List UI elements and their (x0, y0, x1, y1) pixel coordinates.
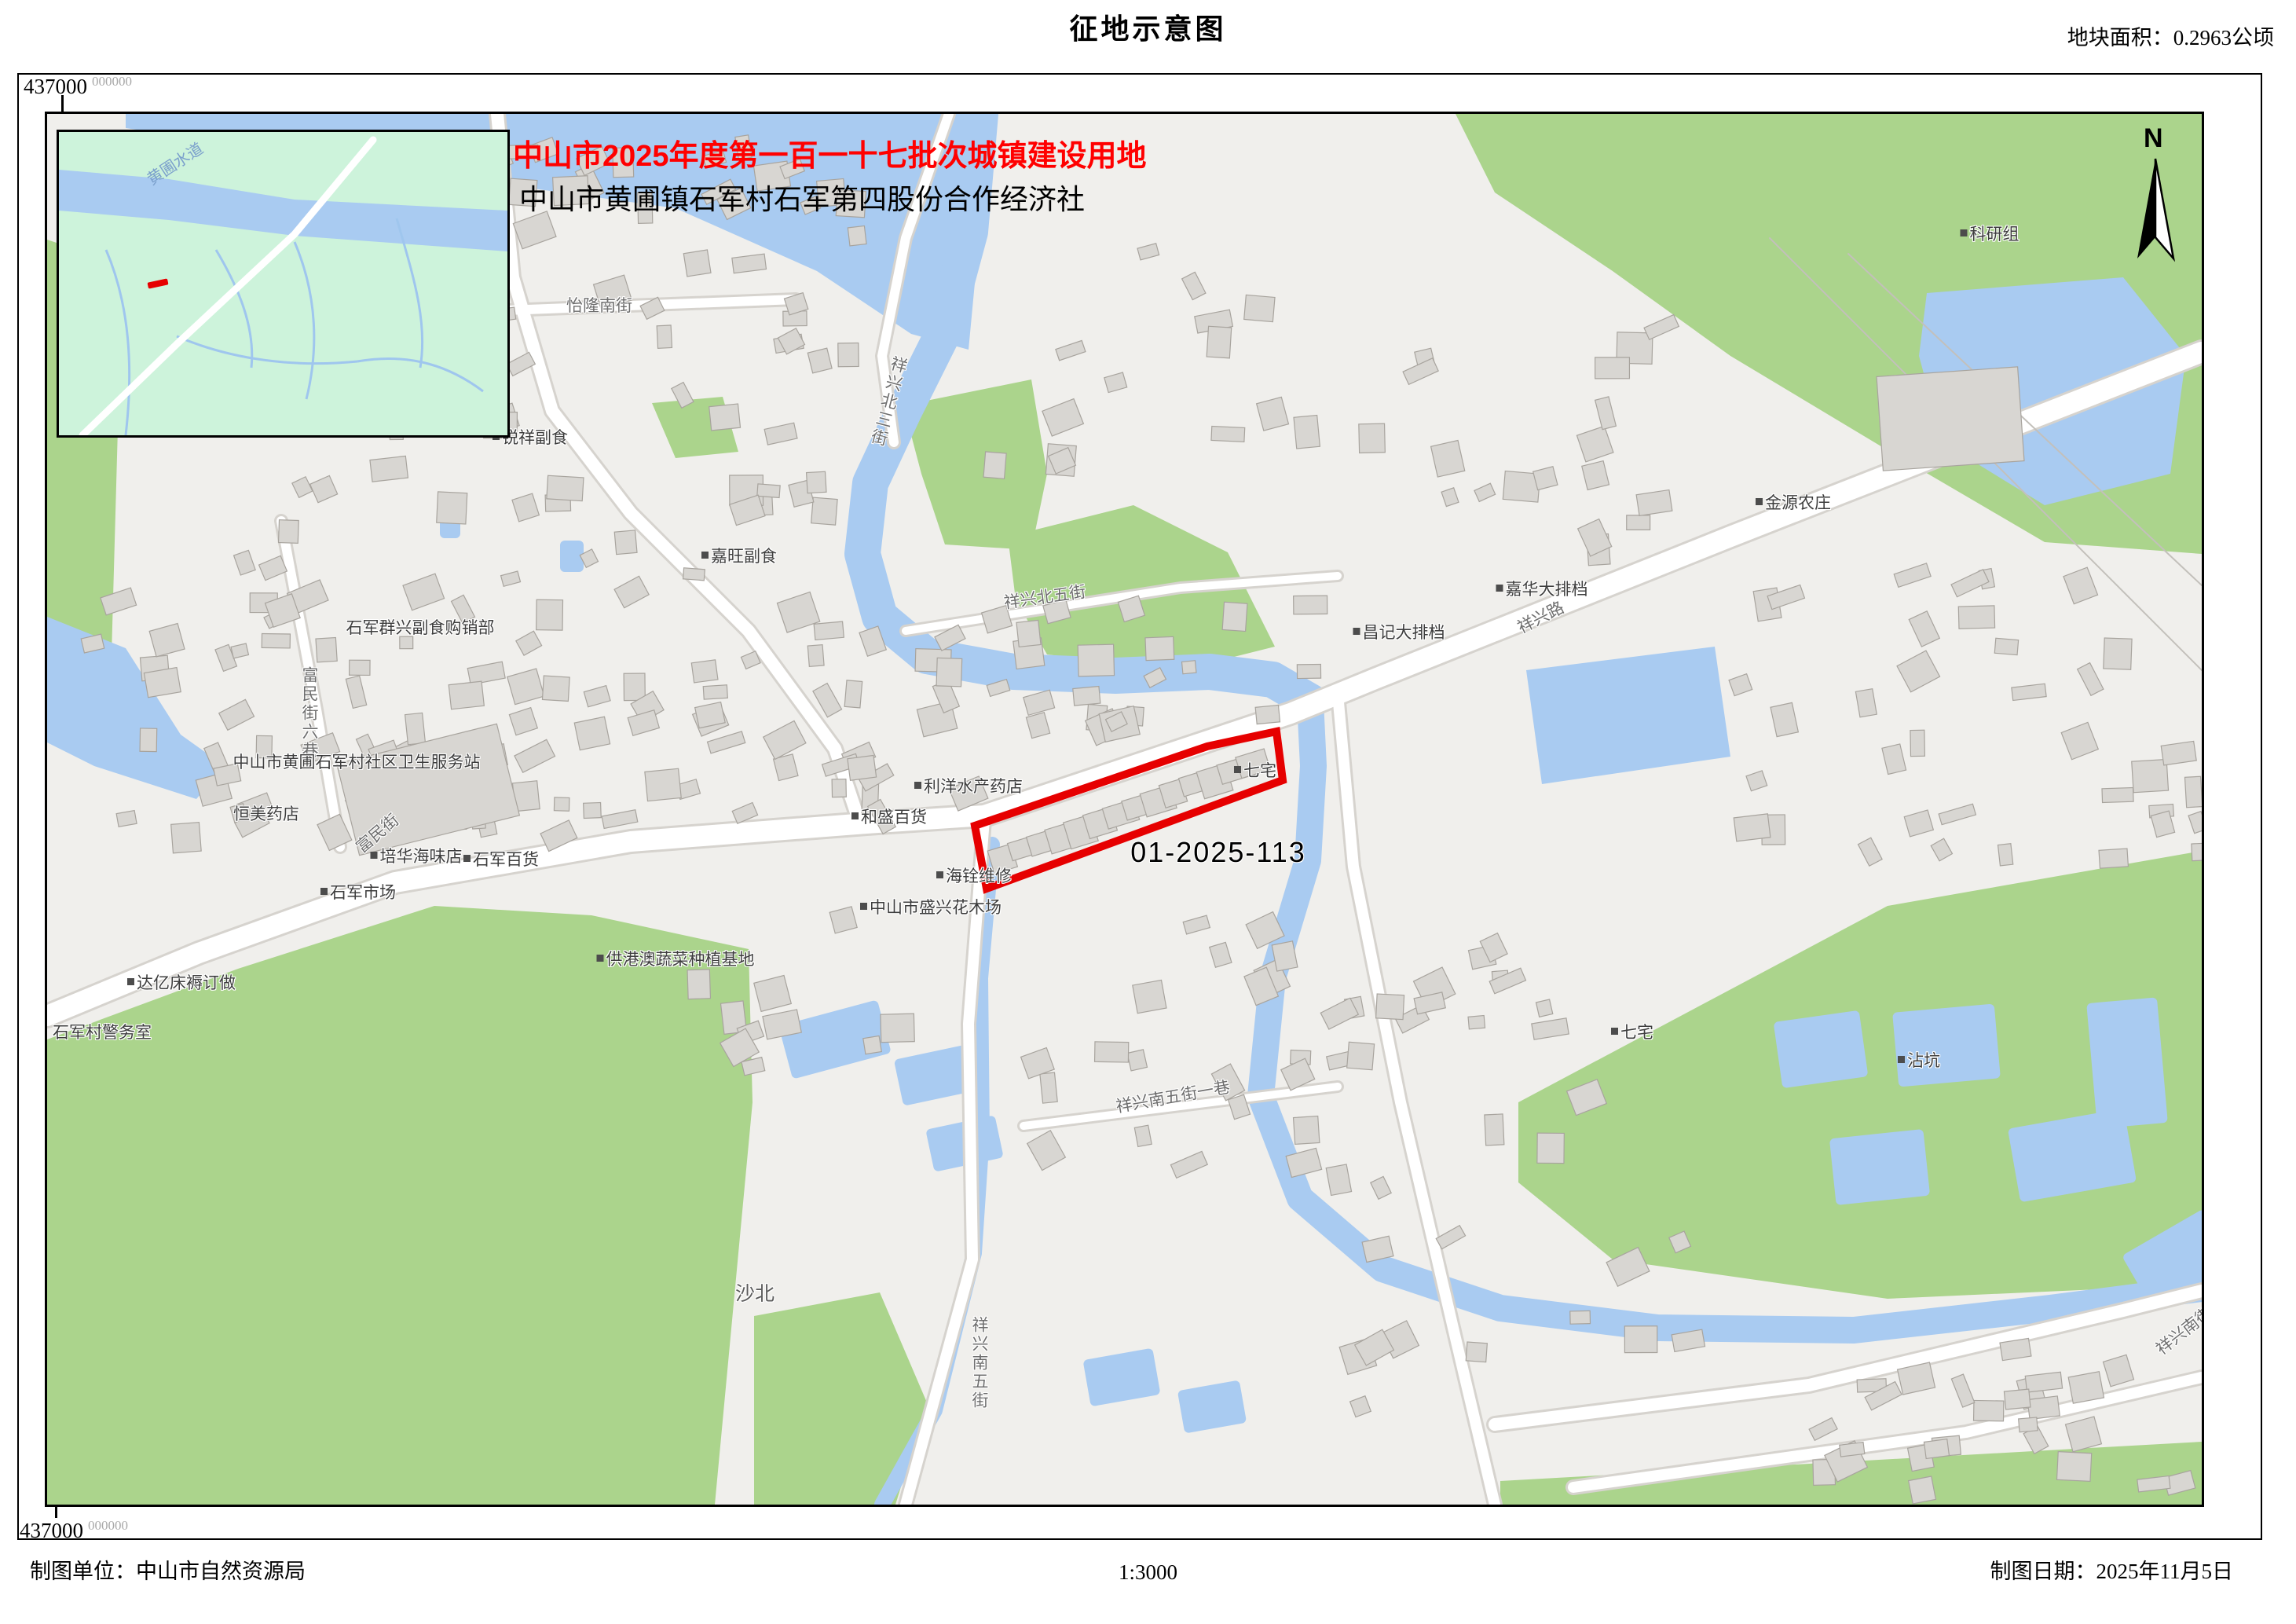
map-label: 石军群兴副食购销部 (346, 615, 495, 639)
poi-marker-icon (463, 855, 471, 862)
map-label: 沾坑 (1898, 1048, 1940, 1072)
poi-marker-icon (1496, 585, 1503, 592)
plot-area-label: 地块面积：0.2963公顷 (2067, 20, 2274, 51)
map-label: 金源农庄 (1756, 490, 1831, 514)
inset-map-svg: 黄圃水道 (59, 132, 507, 435)
poi-marker-icon (914, 782, 921, 789)
poi-marker-icon (1353, 628, 1360, 635)
poi-marker-icon (1611, 1028, 1618, 1035)
page-title: 征地示意图 (0, 6, 2296, 47)
map-label: 利洋水产药店 (914, 774, 1023, 797)
map-label: 培华海味店 (371, 844, 463, 867)
poi-marker-icon (597, 955, 604, 962)
map-label: 嘉华大排档 (1496, 577, 1588, 600)
map-label: 沙北 (735, 1278, 774, 1307)
coordinate-label-top: 437000000000 (24, 74, 132, 99)
map-label: 和盛百货 (851, 805, 927, 828)
poi-marker-icon (1756, 498, 1763, 505)
poi-marker-icon (1898, 1056, 1905, 1063)
map-label: 石军市场 (320, 880, 396, 904)
poi-marker-icon (851, 812, 859, 819)
map-label: 科研组 (1961, 222, 2020, 245)
map-canvas: 中山市2025年度第一百一十七批次城镇建设用地 中山市黄圃镇石军村石军第四股份合… (45, 112, 2204, 1507)
map-label: 富民街六巷 (297, 666, 320, 761)
map-label: 海铨维修 (936, 863, 1012, 887)
map-label: 中山市黄圃石军村社区卫生服务站 (233, 750, 481, 773)
map-label: 石军百货 (463, 847, 539, 871)
map-label: 昌记大排档 (1353, 620, 1445, 643)
map-label: 恒美药店 (233, 801, 299, 825)
map-label: 七宅 (1234, 758, 1276, 782)
plot-id-label: 01-2025-113 (1130, 836, 1306, 869)
inset-overview-map: 黄圃水道 (57, 130, 510, 438)
map-label: 怡隆南街 (566, 293, 632, 317)
coordinate-label-bottom: 437000000000 (20, 1518, 128, 1543)
north-letter: N (2144, 123, 2163, 154)
map-label: 七宅 (1611, 1020, 1653, 1043)
poi-marker-icon (936, 871, 943, 878)
map-label: 嘉旺副食 (701, 544, 777, 567)
map-label: 祥兴南五街 (967, 1316, 991, 1410)
batch-annotation-line1: 中山市2025年度第一百一十七批次城镇建设用地 (513, 131, 1147, 174)
footer-map-scale: 1:3000 (0, 1560, 2296, 1585)
map-label: 石军村警务室 (53, 1020, 152, 1043)
coordinate-tick-top (61, 95, 64, 112)
map-label: 达亿床褥订做 (127, 970, 236, 994)
poi-marker-icon (127, 978, 134, 985)
poi-marker-icon (320, 888, 328, 895)
poi-marker-icon (860, 903, 867, 910)
poi-marker-icon (371, 852, 378, 859)
poi-marker-icon (701, 552, 709, 559)
poi-marker-icon (1234, 766, 1241, 773)
map-label: 中山市盛兴花木场 (860, 895, 1002, 918)
social-annotation-line2: 中山市黄圃镇石军村石军第四股份合作经济社 (519, 177, 1085, 218)
footer-map-date: 制图日期：2025年11月5日 (1990, 1554, 2234, 1585)
poi-marker-icon (1961, 229, 1968, 236)
map-label: 供港澳蔬菜种植基地 (597, 947, 755, 970)
map-sheet: 征地示意图 地块面积：0.2963公顷 437000000000 4370000… (0, 0, 2296, 1624)
north-arrow: N (2129, 123, 2184, 265)
